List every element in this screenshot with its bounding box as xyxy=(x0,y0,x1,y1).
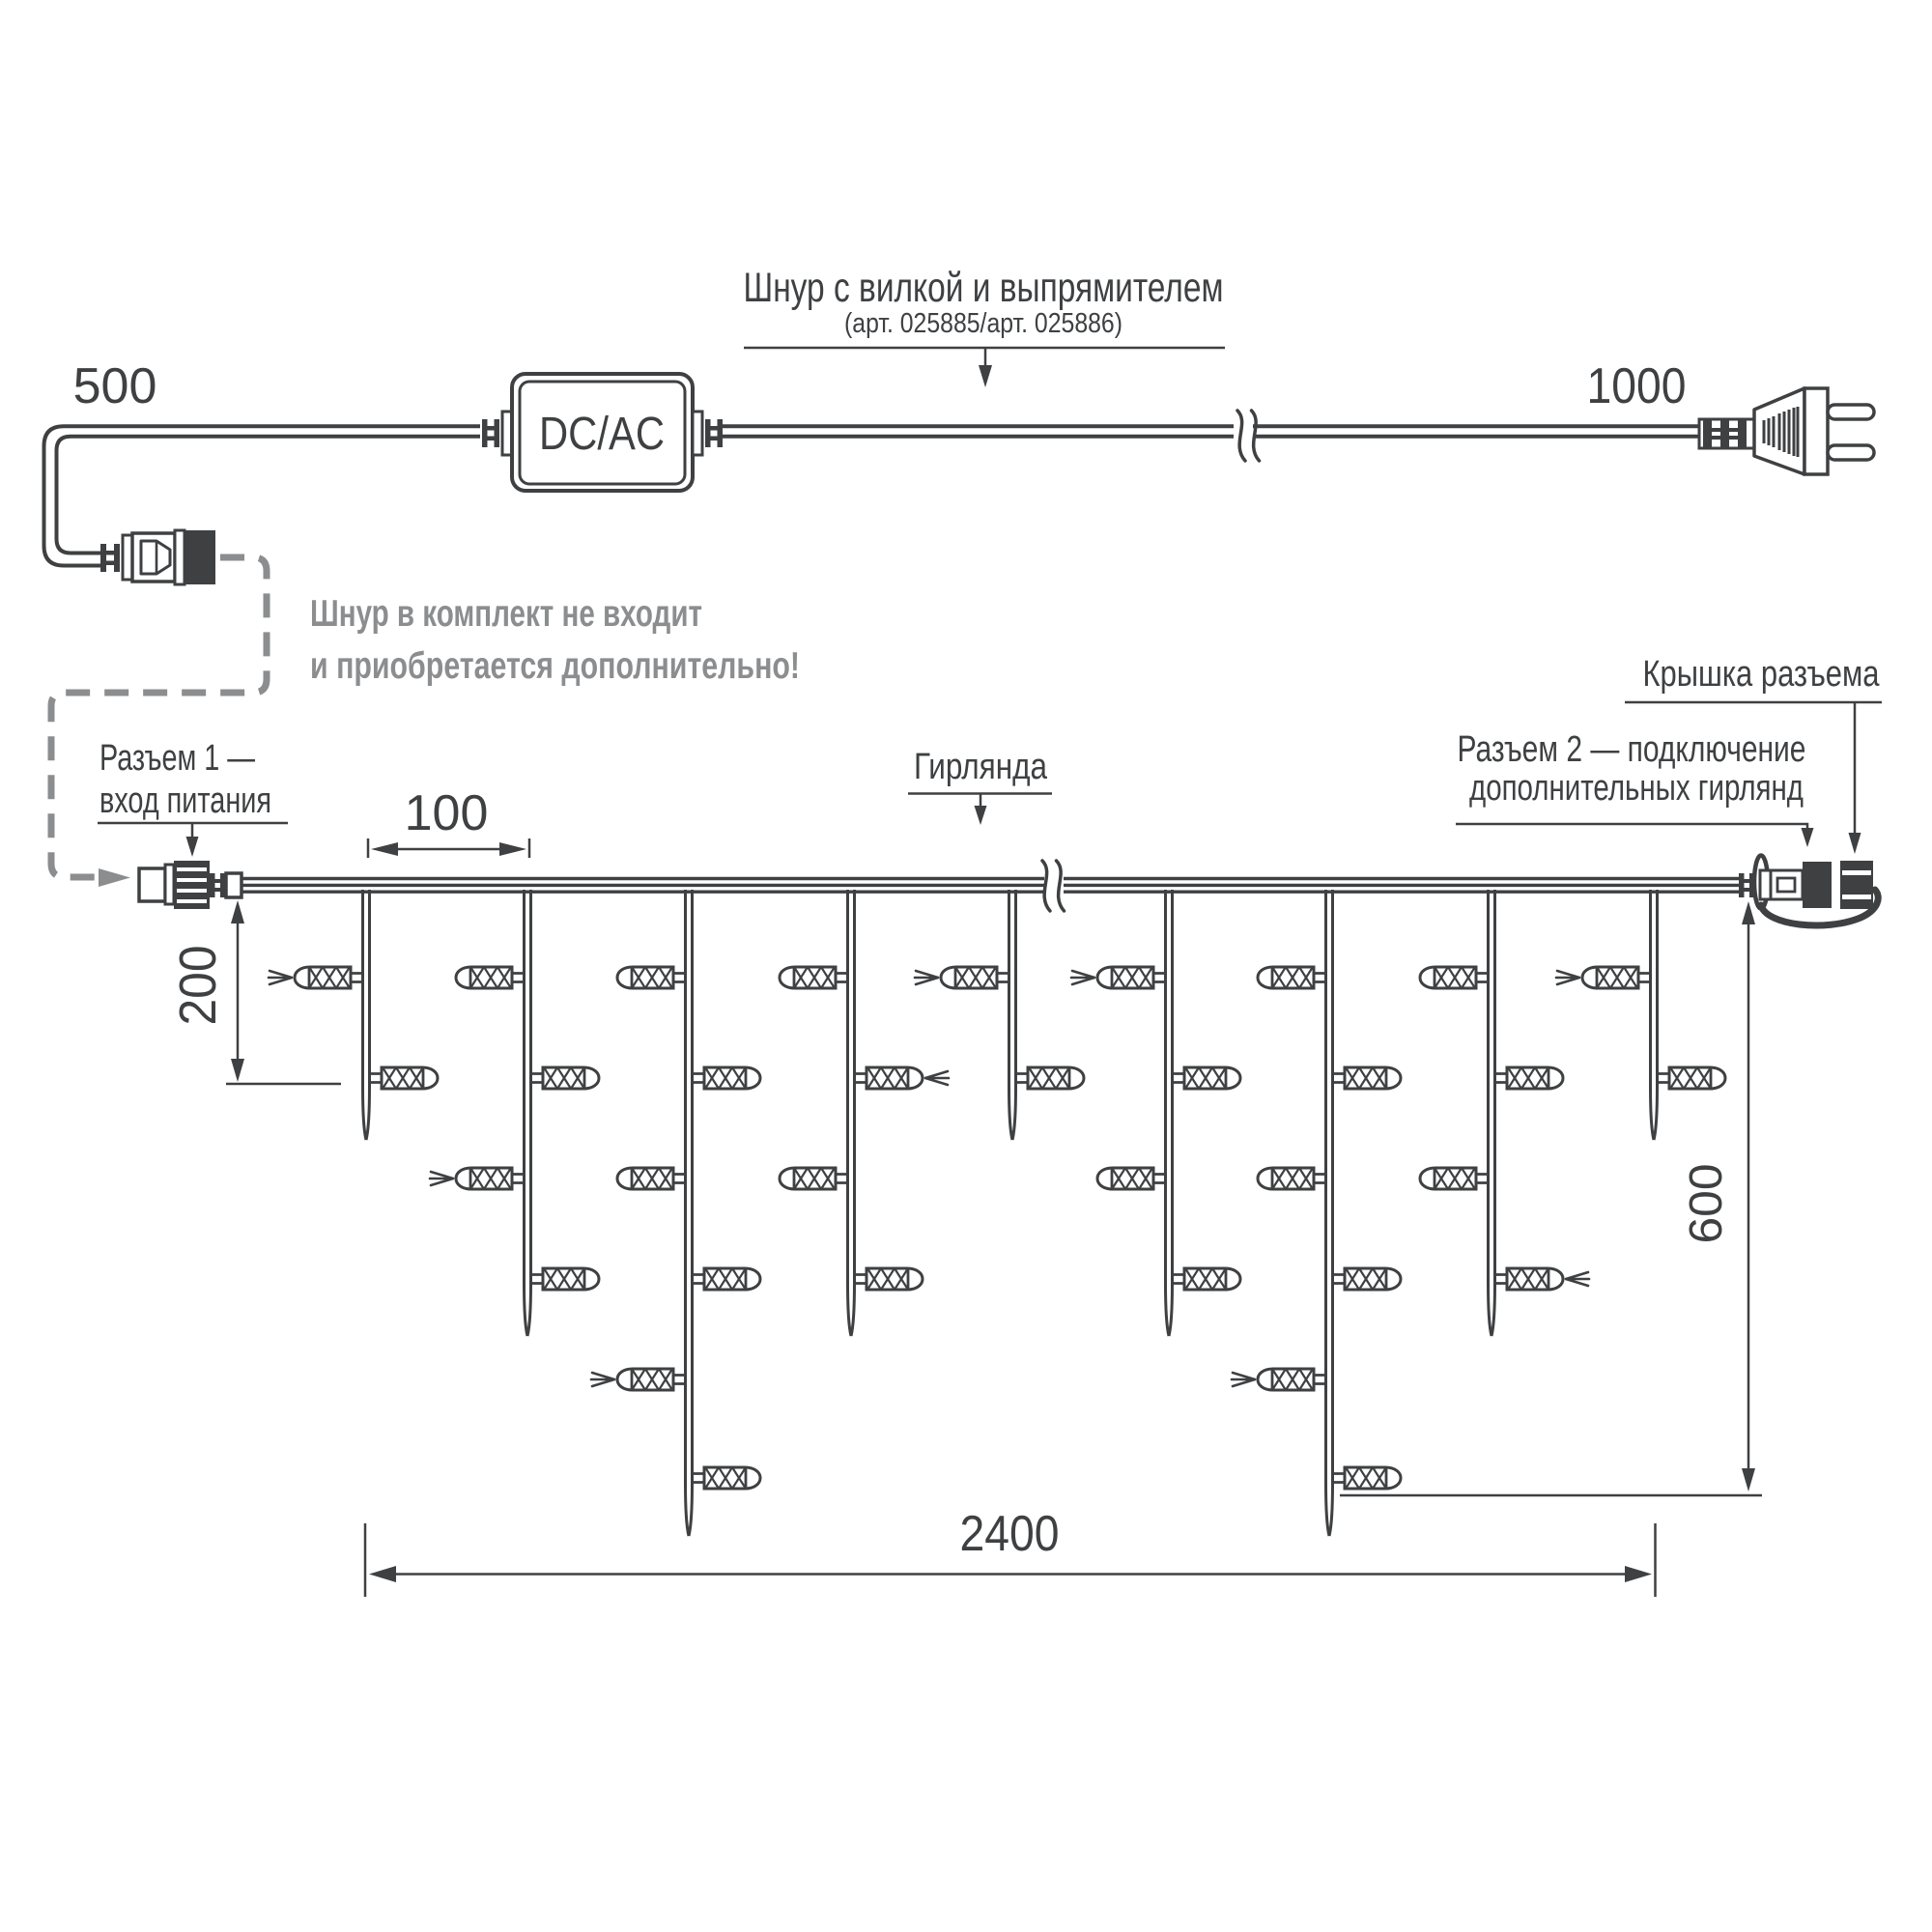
svg-text:Гирлянда: Гирлянда xyxy=(914,747,1048,787)
svg-text:DC/AC: DC/AC xyxy=(539,409,665,460)
svg-text:200: 200 xyxy=(169,946,227,1026)
svg-text:100: 100 xyxy=(405,785,489,841)
svg-text:500: 500 xyxy=(73,358,157,414)
svg-text:Разъем 2 — подключение: Разъем 2 — подключение xyxy=(1458,729,1806,770)
svg-text:и приобретается дополнительно!: и приобретается дополнительно! xyxy=(310,645,800,687)
svg-text:600: 600 xyxy=(1681,1164,1732,1244)
svg-text:Разъем 1 —: Разъем 1 — xyxy=(99,738,255,779)
svg-text:2400: 2400 xyxy=(960,1506,1060,1562)
svg-text:(арт. 025885/арт. 025886): (арт. 025885/арт. 025886) xyxy=(844,308,1122,339)
svg-text:Шнур в комплект не входит: Шнур в комплект не входит xyxy=(310,593,702,635)
svg-text:дополнительных гирлянд: дополнительных гирлянд xyxy=(1469,768,1804,809)
svg-text:Крышка разъема: Крышка разъема xyxy=(1643,654,1881,695)
svg-text:Шнур с вилкой и выпрямителем: Шнур с вилкой и выпрямителем xyxy=(744,265,1224,311)
svg-text:1000: 1000 xyxy=(1587,358,1687,414)
svg-text:вход питания: вход питания xyxy=(99,781,271,821)
